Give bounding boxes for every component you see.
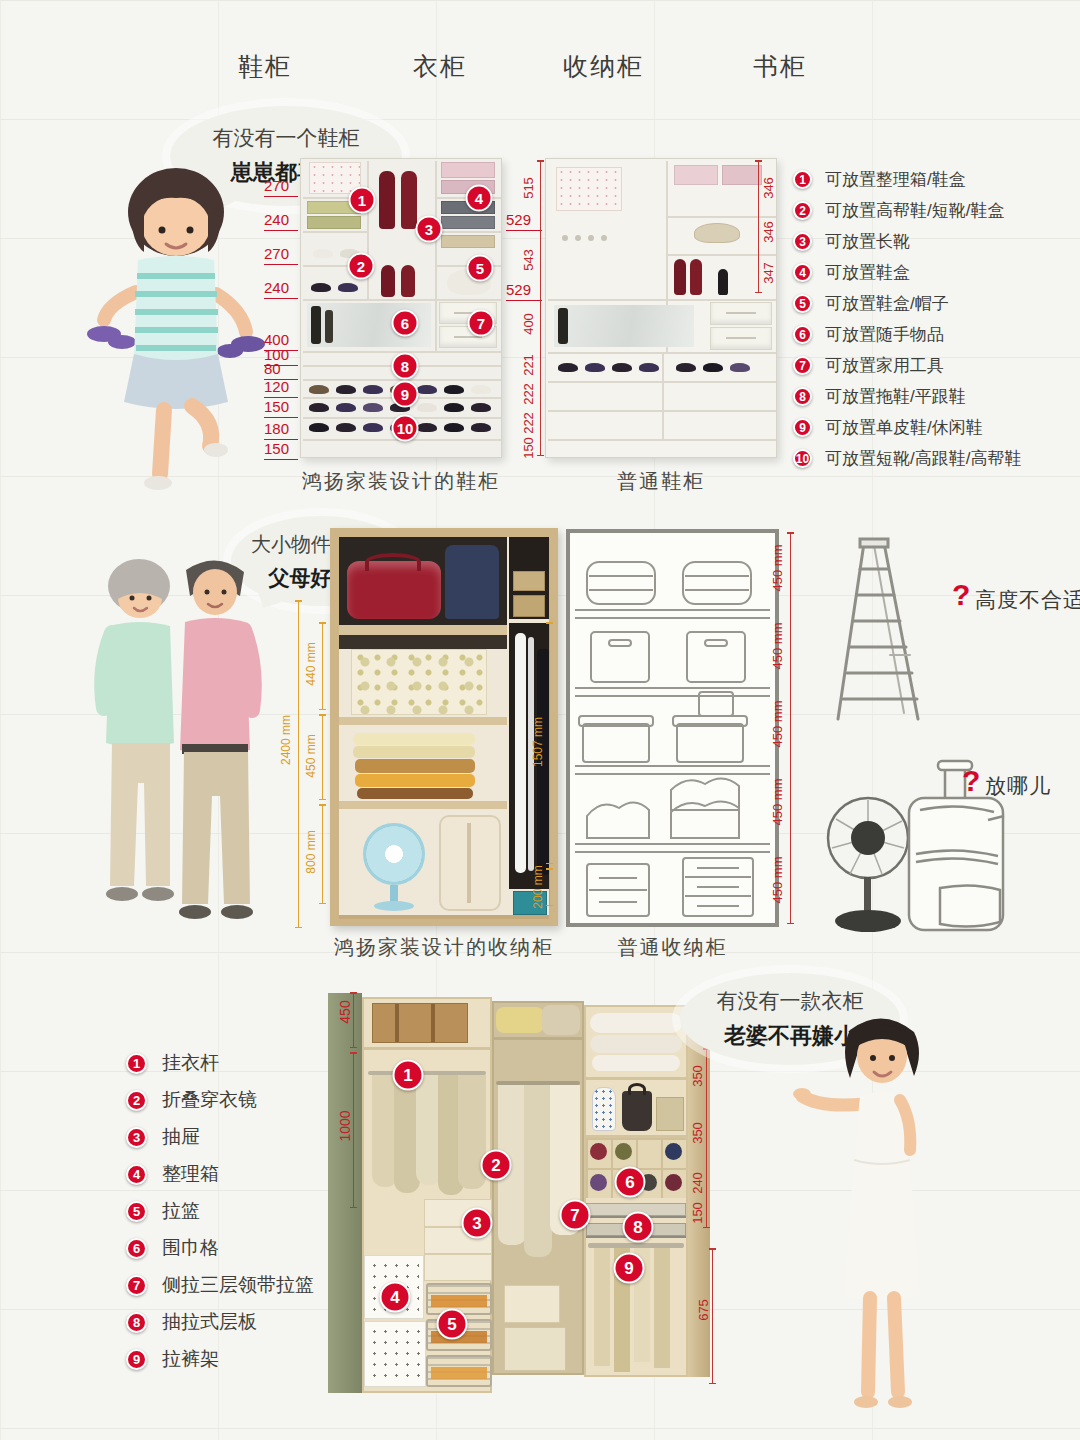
dim-label: 450: [337, 1000, 353, 1023]
dim-line: [353, 1052, 354, 1208]
dim-label: 150: [521, 437, 536, 459]
legend-item: 7侧拉三层领带拉篮: [126, 1272, 314, 1298]
dim-label: 350: [690, 1065, 705, 1087]
number-badge: 5: [437, 1309, 468, 1340]
number-badge: 7: [468, 310, 495, 337]
legend-label: 可放置家用工具: [825, 354, 944, 377]
floral-storage-box: [556, 167, 622, 211]
dim-label: 543: [521, 249, 536, 271]
legend-label: 可放置高帮鞋/短靴/鞋盒: [825, 199, 1004, 222]
dim-label: 450 mm: [770, 857, 785, 904]
dim-label: 529: [506, 282, 542, 301]
woman-photo: [792, 1000, 972, 1420]
dot-pattern: [369, 1326, 421, 1382]
floral-storage-box: [351, 649, 487, 715]
hat: [694, 223, 740, 243]
porcelain-vase: [592, 1087, 616, 1131]
legend-label: 可放置鞋盒/帽子: [825, 292, 949, 315]
legend-label: 可放置单皮鞋/休闲鞋: [825, 416, 983, 439]
number-badge: 2: [793, 201, 812, 220]
red-boots: [401, 171, 417, 229]
shelf: [339, 717, 507, 725]
red-boots: [379, 171, 395, 229]
number-badge: 1: [349, 187, 376, 214]
shelf: [586, 1077, 686, 1080]
poster: 鞋柜 衣柜 收纳柜 书柜 有没有一个鞋柜 崽崽都喜欢: [0, 0, 1080, 1440]
legend-item: 2可放置高帮鞋/短靴/鞋盒: [793, 199, 1021, 222]
dim-label: 346: [761, 177, 776, 199]
number-badge: 2: [481, 1150, 512, 1181]
dim-label: 1507 mm: [531, 717, 545, 767]
shelf: [666, 254, 776, 256]
dim-label: 440 mm: [304, 642, 318, 685]
dim-label: 515: [521, 177, 536, 199]
dim-label: 150: [264, 441, 298, 460]
number-badge: 6: [392, 310, 419, 337]
divider: [367, 161, 369, 299]
shoe-box: [441, 235, 495, 248]
dim-label: 675: [696, 1299, 711, 1321]
thermos: [311, 306, 321, 344]
dim-label: 450 mm: [304, 734, 318, 777]
legend-item: 8可放置拖鞋/平跟鞋: [793, 385, 1021, 408]
number-badge: 6: [615, 1167, 646, 1198]
designed-shoe-cabinet: 1 2 3 4 5 6 7 8 9 10: [300, 158, 502, 458]
dim-label: 800 mm: [304, 830, 318, 873]
basket-contents: [431, 1295, 487, 1307]
pillow: [496, 1007, 544, 1033]
number-badge: 2: [126, 1090, 147, 1111]
legend-label: 可放置短靴/高跟鞋/高帮鞋: [825, 447, 1021, 470]
drawer: [710, 302, 772, 325]
folded-towel: [355, 759, 475, 773]
shelf: [437, 231, 501, 233]
plinth: [339, 915, 549, 919]
dim-line: [706, 1048, 707, 1228]
number-badge: 1: [393, 1060, 424, 1091]
legend-label: 可放置整理箱/鞋盒: [825, 168, 966, 191]
question-text: 高度不合适: [975, 586, 1080, 614]
folded-ladder: [515, 633, 526, 873]
dim-label: 450 mm: [770, 779, 785, 826]
blue-fan: [363, 823, 425, 885]
legend-label: 抽拉式层板: [162, 1309, 257, 1335]
nav-tab-shoe-cabinet[interactable]: 鞋柜: [238, 50, 292, 83]
corner-wardrobe: 1 2 3 4 5 6 7 8 9: [328, 985, 710, 1405]
dim-label: 222: [521, 383, 536, 405]
legend-label: 可放置随手物品: [825, 323, 944, 346]
number-badge: 5: [126, 1201, 147, 1222]
legend-item: 5拉篮: [126, 1198, 314, 1224]
question-text: 放哪儿: [985, 772, 1051, 800]
legend-label: 围巾格: [162, 1235, 219, 1261]
purple-shoes: [87, 326, 136, 349]
number-badge: 10: [392, 415, 419, 442]
fan-base: [374, 901, 414, 911]
dim-label: 346: [761, 221, 776, 243]
black-boots: [732, 269, 742, 295]
number-badge: 8: [392, 353, 419, 380]
shoe-box: [441, 216, 495, 229]
number-badge: 3: [126, 1127, 147, 1148]
legend-label: 整理箱: [162, 1161, 219, 1187]
dim-label: 120: [264, 379, 298, 398]
ordinary-shoe-cabinet: [545, 158, 777, 458]
handbag-handle: [628, 1083, 646, 1095]
dim-line: [298, 600, 299, 928]
dim-label: 80: [264, 361, 298, 380]
legend-item: 6可放置随手物品: [793, 323, 1021, 346]
legend-label: 拉篮: [162, 1198, 200, 1224]
drawer-line: [424, 1253, 492, 1255]
dim-line: [758, 160, 759, 293]
red-boots: [401, 265, 415, 297]
dim-line: [712, 1248, 713, 1384]
number-badge: 7: [126, 1275, 147, 1296]
legend-item: 9拉裤架: [126, 1346, 314, 1372]
legend-label: 抽屉: [162, 1124, 200, 1150]
legend-item: 5可放置鞋盒/帽子: [793, 292, 1021, 315]
wardrobe-legend: 1挂衣杆 2折叠穿衣镜 3抽屉 4整理箱 5拉篮 6围巾格 7侧拉三层领带拉篮 …: [126, 1050, 314, 1372]
dim-label: 270: [264, 246, 298, 265]
dim-line: [549, 868, 550, 906]
rolled-scarf: [590, 1174, 607, 1191]
dim-label: 150: [690, 1202, 705, 1224]
number-badge: 4: [126, 1164, 147, 1185]
number-badge: 5: [793, 294, 812, 313]
number-badge: 8: [126, 1312, 147, 1333]
designed-storage-cabinet: [330, 528, 558, 926]
shelf: [364, 1047, 490, 1050]
dim-line: [353, 992, 354, 1048]
bubble-text: 有没有一个鞋柜: [213, 124, 360, 152]
number-badge: 2: [348, 253, 375, 280]
rolled-scarf: [615, 1143, 632, 1160]
nav-tab-storage-cabinet[interactable]: 收纳柜: [563, 50, 644, 83]
ordinary-storage-caption: 普通收纳柜: [565, 934, 780, 961]
shelf: [339, 801, 507, 809]
shoe-box: [674, 165, 718, 185]
dark-gap: [339, 635, 507, 649]
number-badge: 9: [793, 418, 812, 437]
folded-towel: [357, 788, 473, 799]
number-badge: 1: [126, 1053, 147, 1074]
legend-label: 侧拉三层领带拉篮: [162, 1272, 314, 1298]
number-badge: 7: [793, 356, 812, 375]
shoe-box: [307, 216, 361, 229]
shelf: [494, 1037, 582, 1040]
folded-clothes: [656, 1097, 684, 1131]
legend-item: 4整理箱: [126, 1161, 314, 1187]
legend-item: 10可放置短靴/高跟鞋/高帮鞋: [793, 447, 1021, 470]
number-badge: 9: [614, 1253, 645, 1284]
ordinary-storage-cabinet: [565, 528, 780, 928]
thermos: [558, 308, 568, 344]
legend-item: 4可放置鞋盒: [793, 261, 1021, 284]
dim-line: [549, 622, 550, 864]
girl-photo: [76, 152, 276, 492]
number-badge: 9: [126, 1349, 147, 1370]
hanging-clothes: [524, 1085, 552, 1257]
shelf: [303, 299, 501, 301]
designed-shoe-cabinet-caption: 鸿扬家装设计的鞋柜: [300, 468, 502, 495]
storage-box: [513, 571, 545, 591]
number-badge: 3: [462, 1208, 493, 1239]
hanging-trousers: [594, 1248, 610, 1366]
dim-label: 150: [264, 399, 298, 418]
number-badge: 1: [793, 170, 812, 189]
bedding: [590, 1013, 682, 1033]
suitcase-handle: [467, 823, 471, 903]
legend-label: 挂衣杆: [162, 1050, 219, 1076]
question-mark-icon: ?: [952, 580, 970, 610]
red-boots: [381, 265, 395, 297]
dim-label: 1000: [337, 1110, 353, 1141]
legend-item: 8抽拉式层板: [126, 1309, 314, 1335]
dim-line: [540, 160, 541, 456]
dim-label: 529: [506, 212, 542, 231]
divider: [662, 354, 664, 439]
legend-label: 可放置拖鞋/平跟鞋: [825, 385, 966, 408]
storage-box: [504, 1285, 560, 1323]
number-badge: 4: [466, 185, 493, 212]
number-badge: 7: [560, 1200, 591, 1231]
legend-label: 拉裤架: [162, 1346, 219, 1372]
drawer: [710, 327, 772, 350]
dim-label: 450 mm: [770, 545, 785, 592]
legend-item: 7可放置家用工具: [793, 354, 1021, 377]
shelf: [339, 625, 507, 635]
black-boots: [718, 269, 728, 295]
shelf: [548, 439, 776, 441]
woven-suitcase: [372, 1003, 468, 1043]
rolled-scarf: [590, 1143, 607, 1160]
folded-towel: [353, 733, 475, 745]
ordinary-shoe-cabinet-caption: 普通鞋柜: [545, 468, 777, 495]
storage-box: [513, 595, 545, 617]
shelf: [666, 216, 776, 218]
mirror-compartment: [554, 305, 694, 347]
thermos: [325, 310, 333, 343]
legend-item: 1可放置整理箱/鞋盒: [793, 168, 1021, 191]
number-badge: 8: [793, 387, 812, 406]
number-badge: 6: [793, 325, 812, 344]
number-badge: 4: [380, 1282, 411, 1313]
legend-label: 折叠穿衣镜: [162, 1087, 257, 1113]
dim-label: 450 mm: [770, 701, 785, 748]
dim-label: 450 mm: [770, 623, 785, 670]
legend-item: 3可放置长靴: [793, 230, 1021, 253]
red-boots: [674, 259, 686, 295]
dim-label: 222: [521, 412, 536, 434]
ladder-sketch: [830, 535, 948, 725]
dim-line: [322, 804, 323, 904]
dim-label: 240: [264, 280, 298, 299]
number-badge: 5: [467, 255, 494, 282]
storage-box: [504, 1327, 566, 1371]
nav-tab-wardrobe[interactable]: 衣柜: [413, 50, 467, 83]
number-badge: 10: [793, 449, 812, 468]
shelf: [548, 299, 776, 301]
designed-storage-caption: 鸿扬家装设计的收纳柜: [330, 934, 558, 961]
legend-label: 可放置长靴: [825, 230, 910, 253]
dim-line: [790, 532, 791, 924]
number-badge: 9: [392, 381, 419, 408]
shoe-box: [722, 165, 762, 185]
legend-label: 可放置鞋盒: [825, 261, 910, 284]
dim-label: 350: [690, 1122, 705, 1144]
handbag: [622, 1091, 652, 1131]
legend-item: 3抽屉: [126, 1124, 314, 1150]
dim-label: 200 mm: [531, 865, 545, 908]
rolled-scarf: [665, 1143, 682, 1160]
dim-label: 2400 mm: [279, 715, 293, 765]
number-badge: 8: [623, 1212, 654, 1243]
folded-towel: [353, 746, 475, 758]
dim-label: 180: [264, 421, 298, 440]
number-badge: 4: [793, 263, 812, 282]
legend-item: 9可放置单皮鞋/休闲鞋: [793, 416, 1021, 439]
number-badge: 3: [793, 232, 812, 251]
hanging-trousers: [654, 1248, 670, 1368]
legend-item: 2折叠穿衣镜: [126, 1087, 314, 1113]
folded-towel: [355, 774, 475, 787]
shoe-box: [441, 162, 495, 178]
number-badge: 3: [416, 216, 443, 243]
dim-label: 400: [521, 313, 536, 335]
dim-line: [322, 622, 323, 710]
rolled-scarf: [665, 1174, 682, 1191]
elderly-couple-photo: [82, 538, 272, 928]
basket-contents: [431, 1367, 487, 1379]
number-badge: 6: [126, 1238, 147, 1259]
dim-label: 221: [521, 354, 536, 376]
pillow: [542, 1005, 580, 1035]
shoe-legend: 1可放置整理箱/鞋盒 2可放置高帮鞋/短靴/鞋盒 3可放置长靴 4可放置鞋盒 5…: [793, 168, 1021, 470]
dim-label: 347: [761, 262, 776, 284]
wire-basket: [426, 1355, 492, 1387]
question-mark-icon: ?: [962, 766, 980, 796]
legend-item: 1挂衣杆: [126, 1050, 314, 1076]
dim-label: 240: [690, 1172, 705, 1194]
dim-line: [322, 714, 323, 800]
bedding: [590, 1035, 682, 1053]
legend-item: 6围巾格: [126, 1235, 314, 1261]
divider: [435, 161, 437, 351]
dotted-storage-box: [364, 1321, 426, 1387]
red-boots: [690, 259, 702, 295]
dim-label: 270: [264, 178, 298, 197]
dim-label: 240: [264, 212, 298, 231]
shelf: [303, 231, 367, 233]
folded-jacket: [445, 545, 499, 619]
bedding: [592, 1055, 680, 1071]
bag-handle: [365, 553, 421, 571]
nav-tab-bookcase[interactable]: 书柜: [753, 50, 807, 83]
